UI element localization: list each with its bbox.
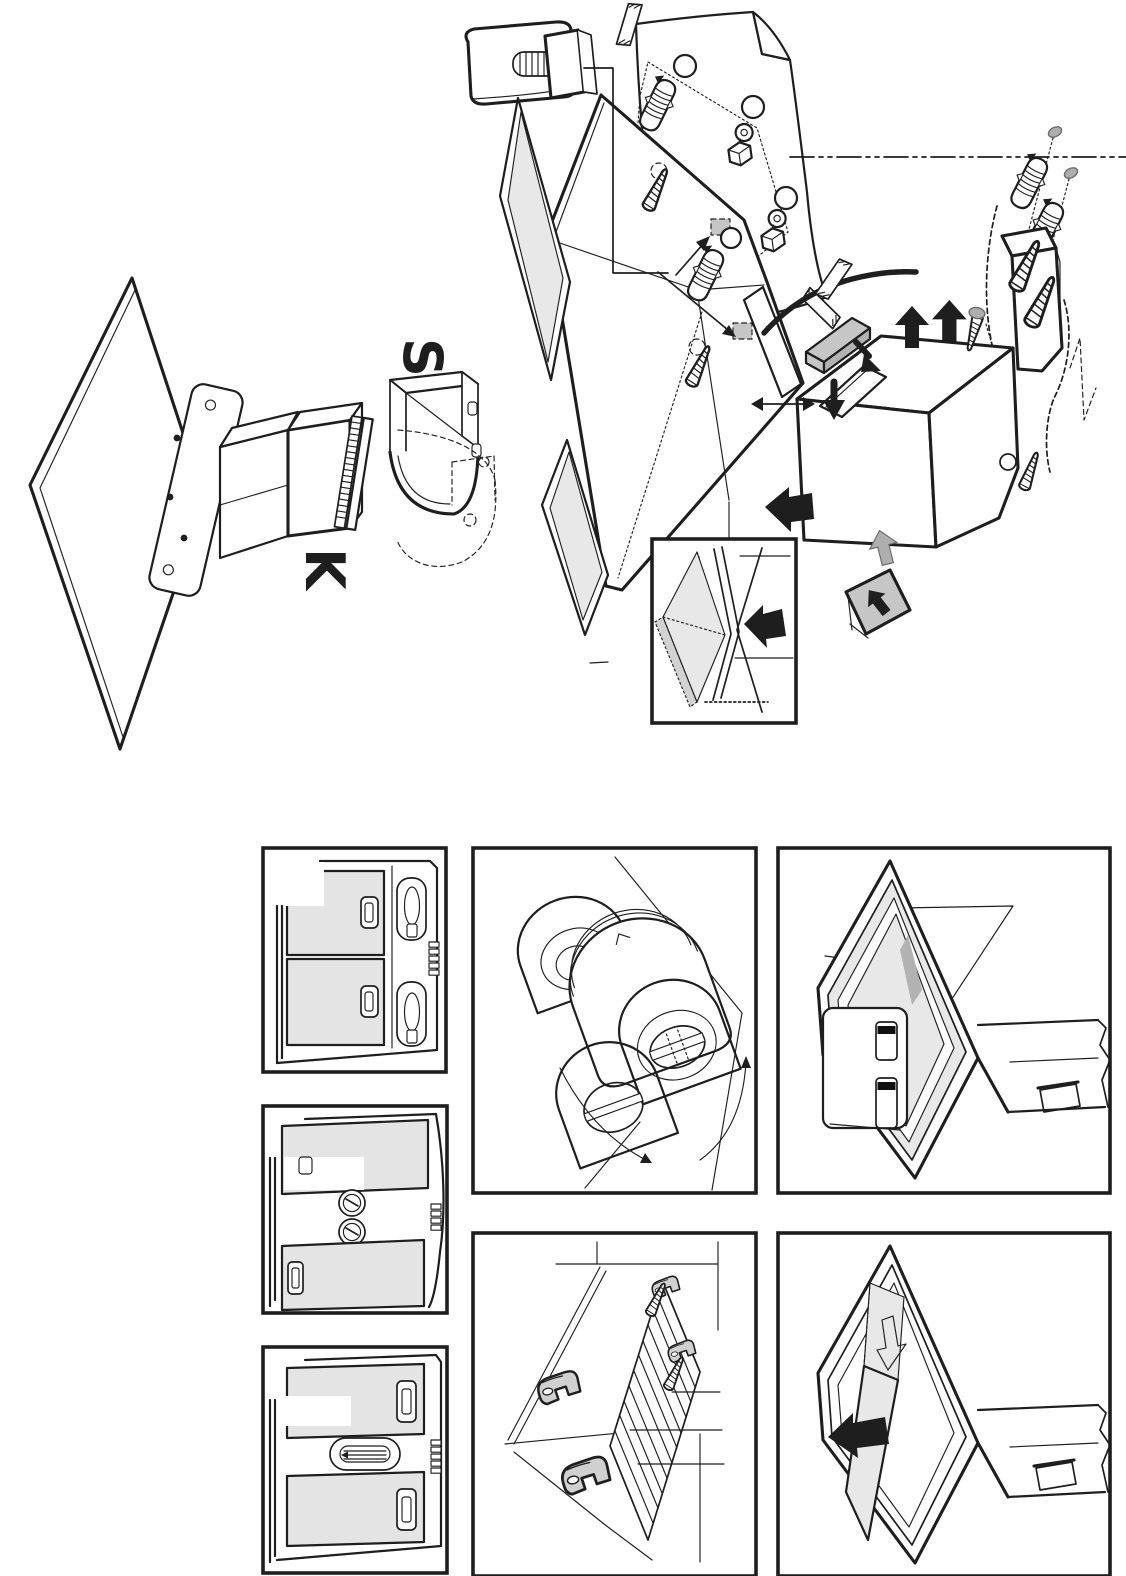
panel-front-door-open [778, 848, 1110, 1193]
panel-frame [473, 1233, 756, 1576]
side-hole [1000, 454, 1016, 470]
panel-blower-rotation [473, 848, 756, 1193]
diagram-canvas: S K [0, 0, 1126, 1576]
template-mark-dotted-2 [733, 323, 752, 339]
label-adapter: K [293, 548, 356, 592]
lamp [397, 878, 426, 940]
filter-handle [361, 897, 378, 928]
drill-hole-2 [742, 96, 764, 118]
control-buttons [431, 1440, 441, 1473]
label-blank [284, 862, 324, 906]
latch [288, 1262, 303, 1294]
label-blank [284, 1157, 364, 1190]
panel-underside-filters [263, 848, 446, 1072]
drill-hole-1 [674, 55, 696, 77]
filter-handle [361, 986, 378, 1017]
oval-lamp-lens [330, 1438, 400, 1470]
label-elbow: S [391, 338, 454, 377]
drill-hole-3 [775, 187, 797, 209]
lamp [397, 982, 426, 1046]
panel-glass-slide-out [778, 1233, 1110, 1576]
rotary-knob [339, 1219, 365, 1245]
door-latch [876, 1022, 897, 1060]
spacer-strap [545, 30, 584, 98]
manual-page: S K [0, 0, 1126, 1576]
latch [397, 1381, 416, 1422]
latch [397, 1489, 416, 1530]
panel-cabinet-clips [473, 1233, 756, 1576]
filter-access-door [823, 1008, 907, 1130]
body-front-face [797, 399, 936, 547]
drill-hole-4 [721, 228, 741, 248]
latch [299, 1157, 312, 1174]
rotary-knob [339, 1190, 365, 1216]
control-buttons [429, 942, 439, 975]
panel-underside-knobs [263, 1106, 447, 1313]
door-latch [876, 1078, 897, 1128]
label-blank [277, 1396, 351, 1426]
panel-underside-lamp [263, 1347, 447, 1573]
